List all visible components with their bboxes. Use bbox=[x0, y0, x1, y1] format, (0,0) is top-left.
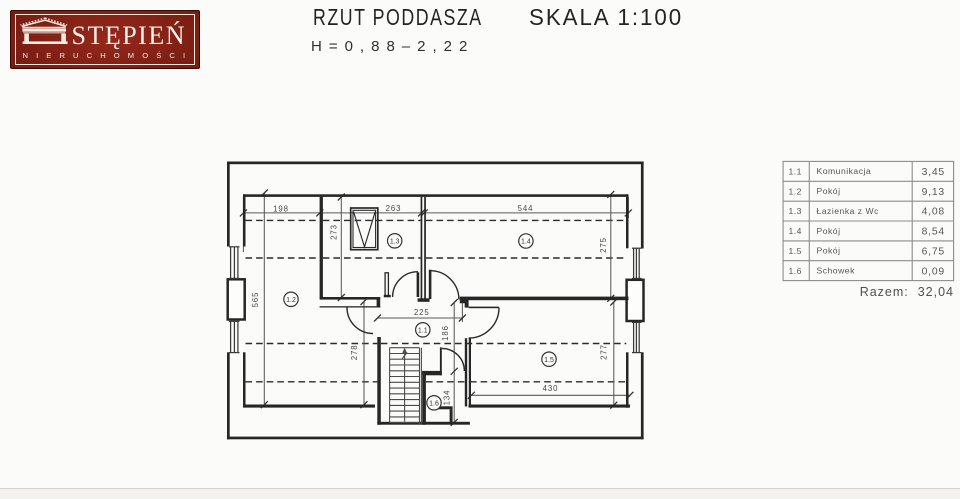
svg-text:225: 225 bbox=[414, 308, 430, 317]
svg-text:565: 565 bbox=[251, 292, 260, 308]
svg-text:1.5: 1.5 bbox=[544, 357, 554, 364]
svg-text:1.1: 1.1 bbox=[418, 327, 428, 334]
svg-text:273: 273 bbox=[330, 224, 339, 240]
svg-text:134: 134 bbox=[442, 390, 451, 406]
svg-text:1.6: 1.6 bbox=[429, 400, 439, 407]
svg-text:278: 278 bbox=[350, 345, 359, 361]
svg-text:544: 544 bbox=[518, 204, 534, 213]
svg-text:1.2: 1.2 bbox=[286, 297, 296, 304]
svg-text:263: 263 bbox=[386, 204, 402, 213]
svg-text:186: 186 bbox=[441, 325, 450, 341]
svg-text:275: 275 bbox=[599, 237, 608, 253]
svg-text:1.4: 1.4 bbox=[521, 239, 531, 246]
svg-text:198: 198 bbox=[273, 204, 289, 213]
svg-text:430: 430 bbox=[543, 384, 559, 393]
svg-text:277: 277 bbox=[599, 344, 608, 360]
svg-text:1.3: 1.3 bbox=[390, 238, 400, 245]
